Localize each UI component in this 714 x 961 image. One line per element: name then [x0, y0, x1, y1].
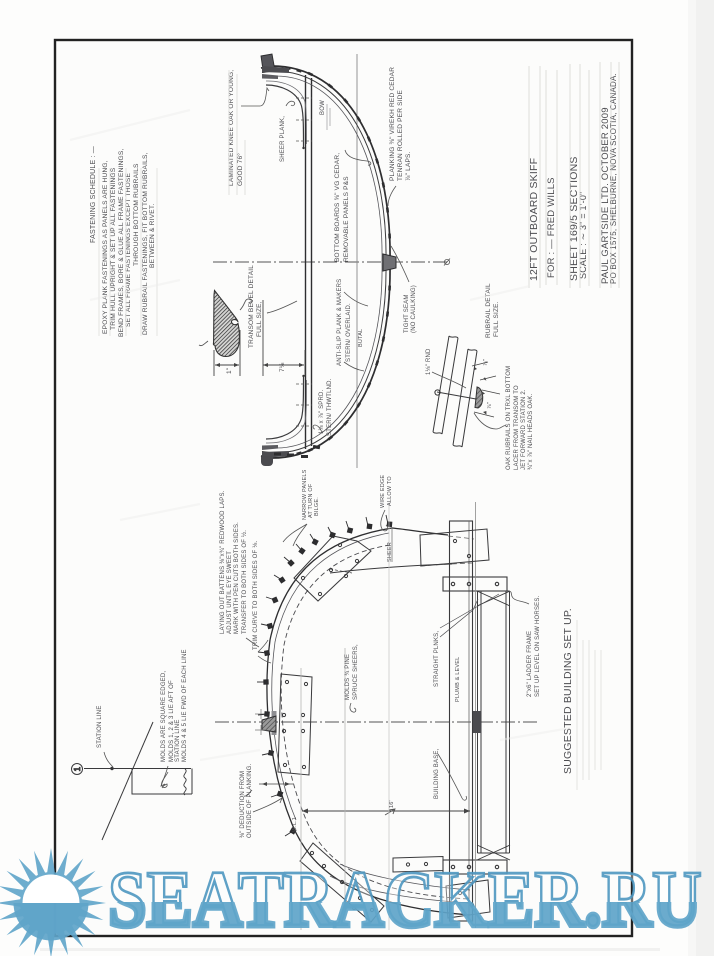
svg-text:FULL SIZE,: FULL SIZE, [256, 301, 263, 337]
svg-text:TRANSFER TO BOTH SIDES OF ½.: TRANSFER TO BOTH SIDES OF ½. [241, 530, 248, 634]
svg-text:STRAIGHT PLNKS,: STRAIGHT PLNKS, [434, 631, 440, 687]
svg-text:PLANKING ⅜" VIREKH RED CEDAR: PLANKING ⅜" VIREKH RED CEDAR [389, 67, 396, 181]
svg-text:STATION LINE: STATION LINE [175, 719, 181, 762]
svg-text:EPOXY PLANK FASTENINGS AS PANE: EPOXY PLANK FASTENINGS AS PANELS ARE HUN… [102, 160, 109, 334]
svg-text:SET UP LEVEL ON SAW HORSES.: SET UP LEVEL ON SAW HORSES. [535, 595, 541, 697]
svg-text:7⅛: 7⅛ [279, 362, 286, 372]
svg-text:SHEER: SHEER [387, 542, 393, 562]
svg-text:TRIM CURVE TO BOTH SIDES OF ⅛.: TRIM CURVE TO BOTH SIDES OF ⅛. [253, 541, 259, 650]
svg-text:PLUMB & LEVEL: PLUMB & LEVEL [455, 657, 461, 702]
svg-text:1": 1" [226, 367, 233, 374]
svg-text:DRAW RUBRAIL FASTENINGS, FIT B: DRAW RUBRAIL FASTENINGS, FIT BOTTOM RUBR… [142, 152, 149, 335]
svg-text:ALLOW TO: ALLOW TO [387, 476, 393, 506]
svg-text:TRANSOM BEVEL DETAIL: TRANSOM BEVEL DETAIL [248, 265, 255, 348]
svg-text:OUTSIDE OF PLANKING.: OUTSIDE OF PLANKING. [247, 764, 253, 838]
svg-text:¾"x ⅞" NAIL HEADS OAK.: ¾"x ⅞" NAIL HEADS OAK. [528, 393, 534, 470]
svg-text:⅞" LAPS.: ⅞" LAPS. [405, 151, 412, 181]
svg-text:STATION LINE: STATION LINE [97, 705, 103, 748]
svg-text:WIRE EDGE: WIRE EDGE [380, 475, 386, 508]
svg-text:BETWEEN & RIVET.: BETWEEN & RIVET. [149, 204, 156, 268]
svg-text:MOLDS ¾ PINE: MOLDS ¾ PINE [345, 654, 351, 700]
svg-text:BEND FRAMES, BORE & GLUE ALL F: BEND FRAMES, BORE & GLUE ALL FRAME FASTE… [118, 149, 125, 338]
svg-text:ANTI-SLIP PLANK & MAKERS: ANTI-SLIP PLANK & MAKERS [337, 279, 343, 366]
svg-text:W.L.1: W.L.1 [292, 817, 298, 832]
svg-text:STERN/ THWTLND.: STERN/ THWTLND. [327, 378, 333, 436]
svg-text:SCALE : ∼ 3" = 1'-0": SCALE : ∼ 3" = 1'-0" [578, 192, 588, 279]
svg-text:SPRUCE SHEERS,: SPRUCE SHEERS, [353, 644, 359, 700]
svg-text:OAK RUBRAILS ON TRXL BOTTOM: OAK RUBRAILS ON TRXL BOTTOM [506, 366, 512, 470]
svg-text:SUGGESTED BUILDING SET UP.: SUGGESTED BUILDING SET UP. [562, 608, 574, 774]
svg-text:PO BOX 1575, SHELBURNE, NOVA S: PO BOX 1575, SHELBURNE, NOVA SCOTIA, CAN… [609, 73, 618, 284]
svg-text:BUTAL: BUTAL [358, 329, 364, 347]
svg-text:BILGE.: BILGE. [314, 497, 320, 516]
svg-text:THROUGH BOTTOM RUBRAILS: THROUGH BOTTOM RUBRAILS [133, 163, 140, 266]
svg-text:SHEER PLANK,: SHEER PLANK, [280, 116, 286, 162]
svg-text:FULL SIZE.: FULL SIZE. [493, 301, 500, 337]
svg-text:LAYING OUT BATTENS ⅜"x¾" REDWO: LAYING OUT BATTENS ⅜"x¾" REDWOOD LAPS. [220, 490, 226, 634]
svg-text:2"x6" LADDER FRAME: 2"x6" LADDER FRAME [527, 631, 533, 697]
svg-text:(NO CAULKING): (NO CAULKING) [411, 285, 417, 333]
svg-text:1⅛ x ⅞" SPRD.: 1⅛ x ⅞" SPRD. [319, 389, 325, 434]
svg-text:RUBRAIL DETAIL: RUBRAIL DETAIL [485, 283, 492, 338]
svg-text:ADJUST UNTIL EYE SWEET: ADJUST UNTIL EYE SWEET [227, 551, 233, 634]
svg-text:MARK WITH PEN CUTS BOTH SIDES.: MARK WITH PEN CUTS BOTH SIDES. [234, 522, 240, 634]
svg-text:STERN/ OVERLAID.: STERN/ OVERLAID. [346, 303, 352, 362]
svg-text:BOW: BOW [320, 100, 326, 115]
svg-text:BOTTOM BOARDS ⅝" VG CEDAR,: BOTTOM BOARDS ⅝" VG CEDAR, [334, 153, 341, 262]
svg-text:12FT OUTBOARD SKIFF: 12FT OUTBOARD SKIFF [528, 158, 540, 281]
svg-text:TIGHT SEAM: TIGHT SEAM [404, 294, 410, 333]
svg-text:1⅛" RND: 1⅛" RND [426, 348, 432, 375]
svg-text:TRIM HULL UPRIGHT & SET UP ALL: TRIM HULL UPRIGHT & SET UP ALL FASTENING… [110, 167, 117, 330]
svg-text:⅞": ⅞" [487, 402, 493, 409]
svg-text:⅞": ⅞" [483, 359, 489, 366]
svg-text:MOLDS ARE SQUARE EDGED,: MOLDS ARE SQUARE EDGED, [161, 671, 167, 762]
svg-text:⅜" DEDUCTION FROM: ⅜" DEDUCTION FROM [240, 771, 246, 838]
svg-text:MOLDS 4 & 5 LIE FWD OF EACH LI: MOLDS 4 & 5 LIE FWD OF EACH LINE [182, 649, 188, 762]
svg-text:16': 16' [389, 800, 395, 808]
svg-text:FASTENING SCHEDULE : —: FASTENING SCHEDULE : — [90, 146, 97, 243]
svg-text:REMOVABLE PANELS P&S: REMOVABLE PANELS P&S [343, 176, 350, 262]
svg-text:TENRAN ROLLED PER SIDE: TENRAN ROLLED PER SIDE [397, 89, 404, 181]
svg-text:1: 1 [73, 766, 82, 771]
svg-text:FOR : — FRED WILLS: FOR : — FRED WILLS [546, 177, 557, 278]
svg-text:JET FORWARD STATION 2.: JET FORWARD STATION 2. [521, 389, 527, 470]
svg-text:LACER FROM TRANSOM TO: LACER FROM TRANSOM TO [514, 385, 520, 470]
